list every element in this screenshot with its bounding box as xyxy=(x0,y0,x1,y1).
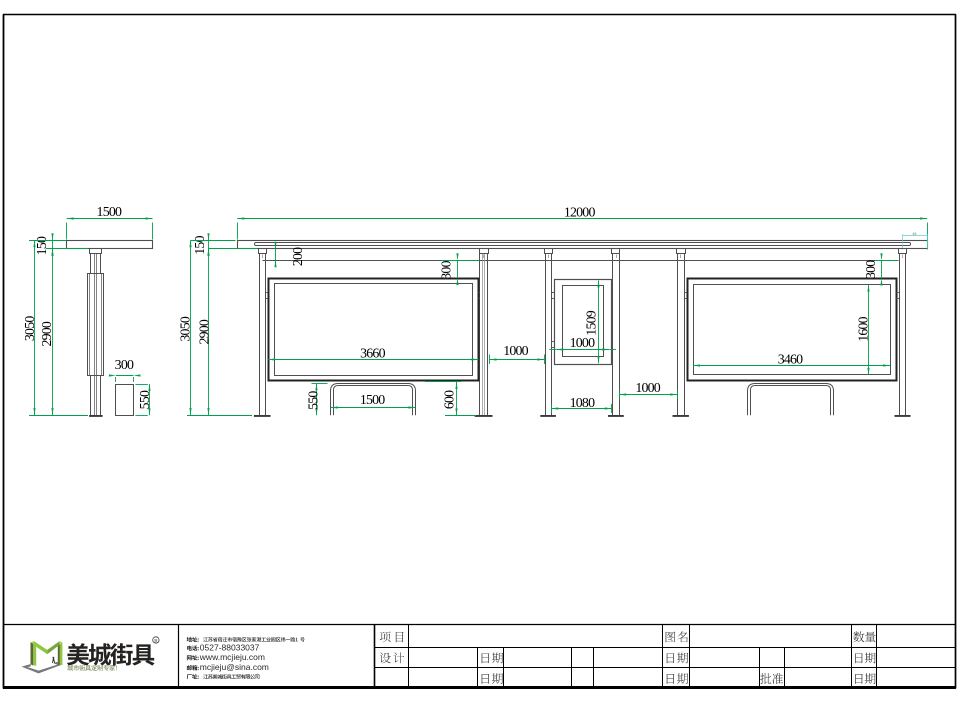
svg-text:150: 150 xyxy=(35,236,50,255)
svg-text:3050: 3050 xyxy=(23,316,38,341)
svg-text:1000: 1000 xyxy=(503,344,528,359)
svg-text:12000: 12000 xyxy=(564,206,596,221)
svg-text:www.mcjieju.com: www.mcjieju.com xyxy=(199,652,265,662)
svg-text:2900: 2900 xyxy=(40,321,55,346)
svg-text:1500: 1500 xyxy=(97,205,122,220)
svg-text:3050: 3050 xyxy=(178,316,193,341)
svg-text:300: 300 xyxy=(440,260,455,279)
svg-text:1000: 1000 xyxy=(570,336,595,351)
svg-text:1500: 1500 xyxy=(360,393,385,408)
svg-text:2900: 2900 xyxy=(197,319,212,344)
svg-text:300: 300 xyxy=(864,260,879,279)
svg-text:R: R xyxy=(154,638,158,644)
svg-text:1600: 1600 xyxy=(856,316,871,341)
svg-text:3660: 3660 xyxy=(360,346,385,361)
svg-text:550: 550 xyxy=(307,391,322,410)
svg-text:300: 300 xyxy=(115,358,134,373)
svg-text:150: 150 xyxy=(193,235,208,254)
svg-text:200: 200 xyxy=(291,247,306,266)
svg-text:1080: 1080 xyxy=(570,396,595,411)
svg-text:1509: 1509 xyxy=(584,310,599,335)
svg-text:1000: 1000 xyxy=(635,381,660,396)
svg-text:3460: 3460 xyxy=(778,353,803,368)
svg-text:0527-88033037: 0527-88033037 xyxy=(200,642,260,652)
svg-text:550: 550 xyxy=(138,390,153,409)
svg-text:mcjieju@sina.com: mcjieju@sina.com xyxy=(200,662,269,672)
svg-text:45: 45 xyxy=(913,232,917,236)
svg-text:600: 600 xyxy=(443,390,458,409)
